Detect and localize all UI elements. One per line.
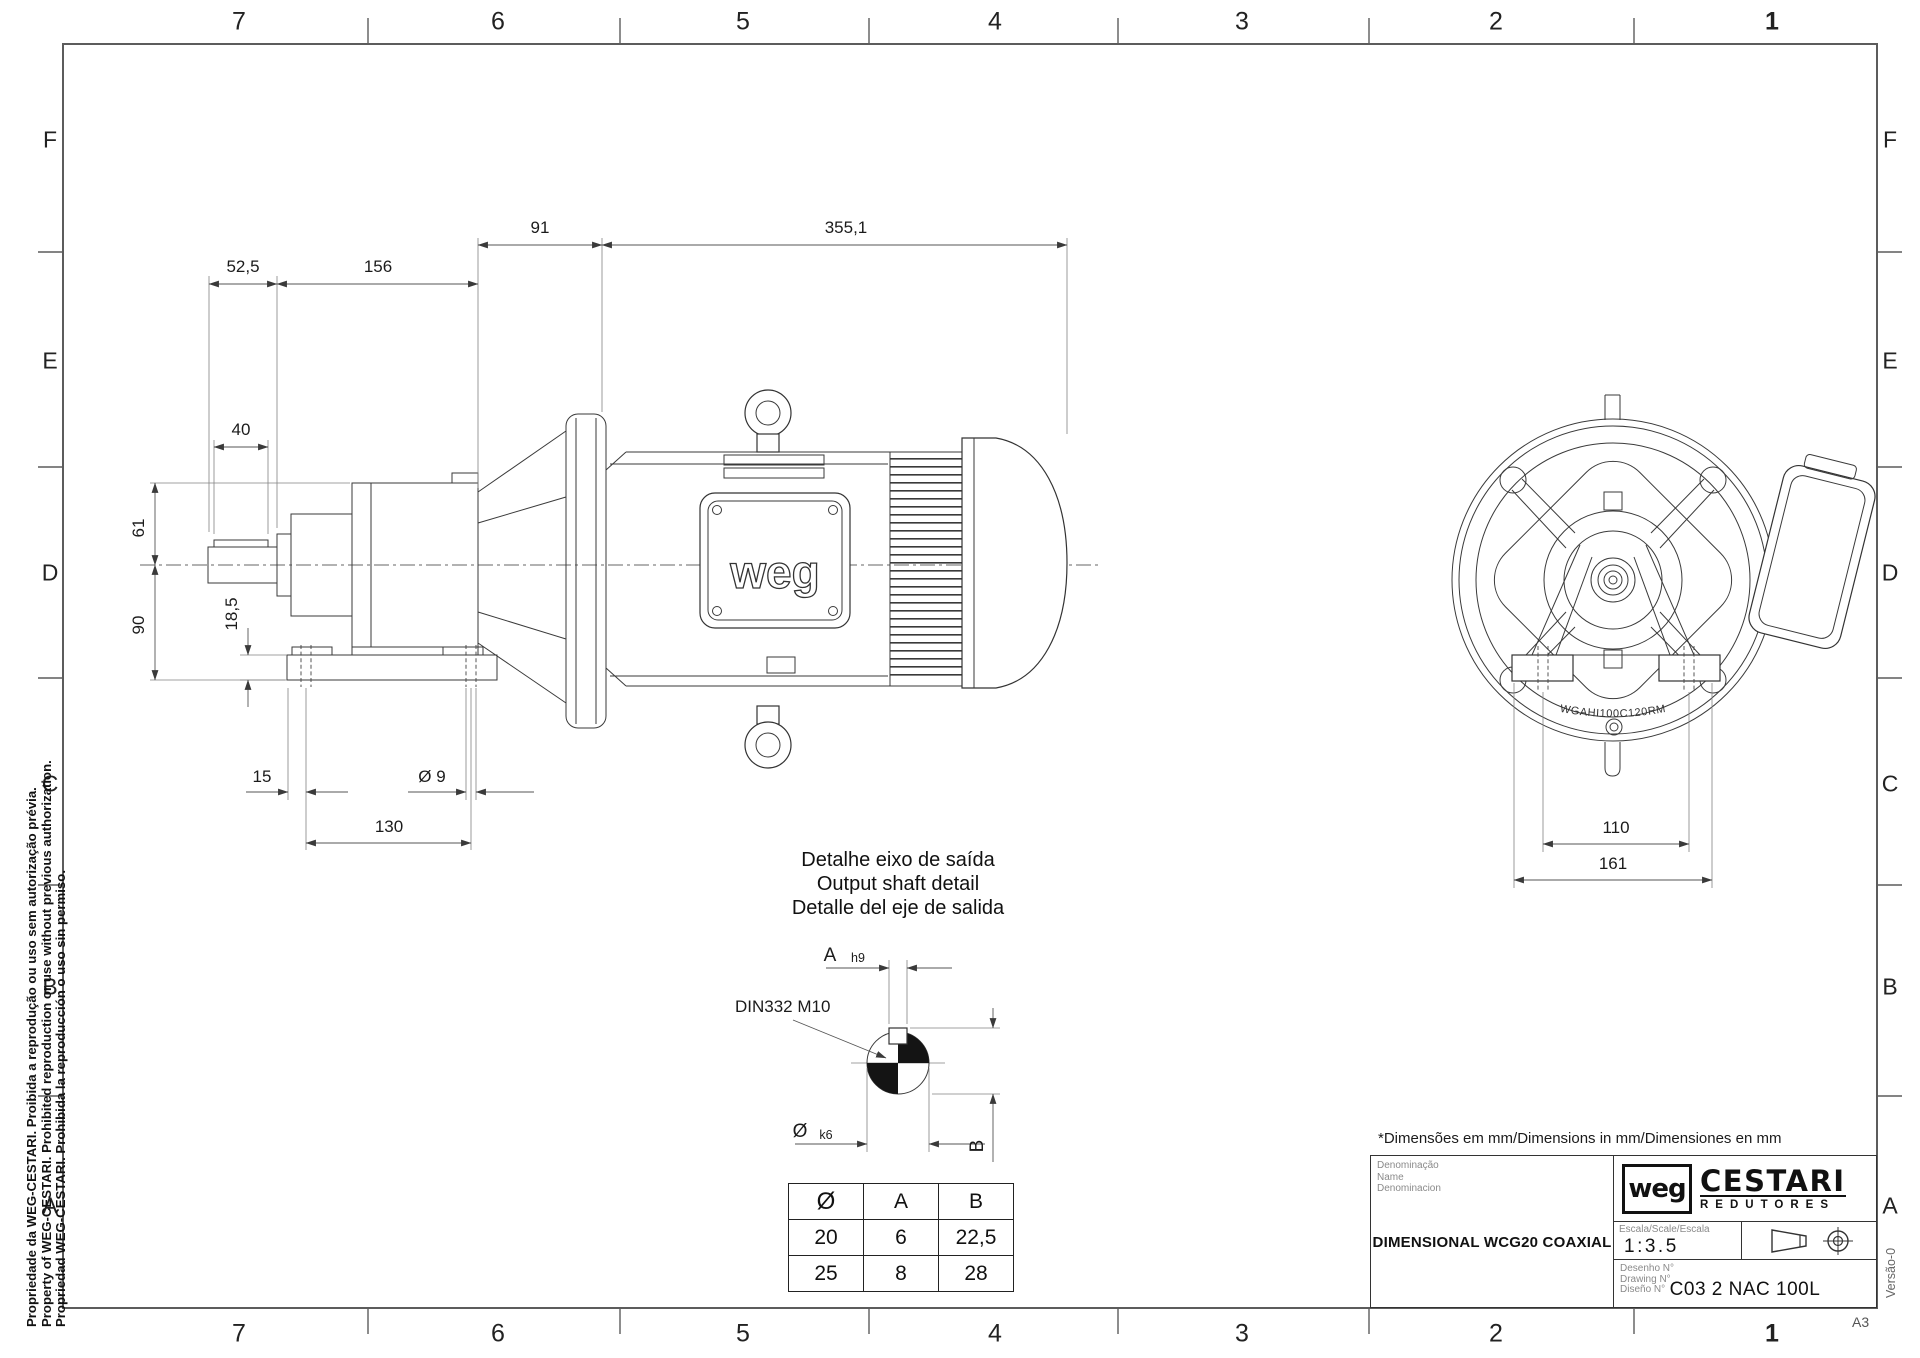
name-label-es: Denominacion <box>1377 1183 1613 1195</box>
svg-text:18,5: 18,5 <box>222 597 241 630</box>
zone-col: 7 <box>232 8 246 37</box>
svg-text:Detalhe eixo de saída: Detalhe eixo de saída <box>801 849 995 871</box>
svg-text:355,1: 355,1 <box>825 218 868 237</box>
zone-row: F <box>43 127 57 154</box>
drawing-number-cell: Desenho N° Drawing N° Diseño N° C03 2 NA… <box>1614 1260 1876 1307</box>
brand-name: CESTARI <box>1700 1167 1846 1197</box>
zone-row: E <box>42 348 57 375</box>
zone-col: 6 <box>491 8 505 37</box>
scale-value: 1:3.5 <box>1614 1236 1741 1258</box>
zone-row: B <box>1882 974 1897 1001</box>
zone-col: 3 <box>1235 8 1249 37</box>
svg-text:130: 130 <box>375 817 403 836</box>
svg-text:91: 91 <box>531 218 550 237</box>
name-label-en: Name <box>1377 1172 1613 1184</box>
zone-row: F <box>1883 127 1897 154</box>
zone-col: 1 <box>1765 1320 1779 1349</box>
svg-text:15: 15 <box>253 767 272 786</box>
zone-col: 5 <box>736 8 750 37</box>
eyebolt-top <box>745 390 791 452</box>
brand-division: REDUTORES <box>1700 1199 1846 1211</box>
eyebolt-bottom <box>745 706 791 768</box>
table-cell: 22,5 <box>939 1220 1014 1256</box>
svg-text:DIN332 M10: DIN332 M10 <box>735 997 830 1016</box>
weg-logo: weg <box>1622 1164 1692 1214</box>
svg-text:110: 110 <box>1602 818 1629 837</box>
svg-text:k6: k6 <box>819 1128 832 1142</box>
drawing-no-label-pt: Desenho N° <box>1620 1264 1876 1275</box>
shaft-dimension-table: Ø A B 20 6 22,5 25 8 28 <box>788 1183 1014 1292</box>
zone-col: 5 <box>736 1320 750 1349</box>
units-note: *Dimensões em mm/Dimensions in mm/Dimens… <box>1378 1130 1781 1147</box>
svg-text:B: B <box>967 1140 988 1153</box>
zone-col: 4 <box>988 8 1002 37</box>
svg-text:Detalle del eje de salida: Detalle del eje de salida <box>792 897 1005 919</box>
zone-col: 2 <box>1489 1320 1503 1349</box>
drawing-sheet: weg <box>0 0 1920 1358</box>
svg-text:61: 61 <box>129 519 148 538</box>
svg-text:40: 40 <box>232 420 251 439</box>
zone-row: A <box>1882 1193 1897 1220</box>
scale-cell: Escala/Scale/Escala 1:3.5 <box>1614 1222 1742 1259</box>
copyright-notice: Propriedade da WEG-CESTARI. Proibida a r… <box>25 667 67 1327</box>
zone-col: 7 <box>232 1320 246 1349</box>
table-cell: 6 <box>864 1220 939 1256</box>
zone-col: 2 <box>1489 8 1503 37</box>
zone-col: 4 <box>988 1320 1002 1349</box>
svg-text:Output shaft detail: Output shaft detail <box>817 873 979 895</box>
drawing-title: DIMENSIONAL WCG20 COAXIAL <box>1371 1234 1613 1251</box>
side-view-dimensions: 52,5 156 91 355,1 40 61 90 18,5 15 <box>129 218 1067 850</box>
svg-text:156: 156 <box>364 257 392 276</box>
zone-col: 3 <box>1235 1320 1249 1349</box>
name-label-pt: Denominação <box>1377 1160 1613 1172</box>
table-header: A <box>864 1184 939 1220</box>
svg-text:A: A <box>824 945 837 966</box>
first-angle-projection-icon <box>1754 1224 1864 1258</box>
svg-text:161: 161 <box>1599 854 1627 873</box>
title-block-name-cell: Denominação Name Denominacion DIMENSIONA… <box>1371 1156 1614 1307</box>
zone-col: 6 <box>491 1320 505 1349</box>
zone-row: E <box>1882 348 1897 375</box>
zone-col: 1 <box>1765 8 1779 37</box>
zone-row: C <box>1882 771 1899 798</box>
version-label: Versão-0 <box>1884 1228 1902 1318</box>
table-row: 25 8 28 <box>789 1256 1014 1292</box>
table-cell: 28 <box>939 1256 1014 1292</box>
drawing-number: C03 2 NAC 100L <box>1614 1279 1876 1301</box>
front-view: WGAHI100C120RM 110 161 <box>1452 395 1882 888</box>
projection-symbol-cell <box>1742 1222 1876 1259</box>
copyright-line-en: Property of WEG-CESTARI. Prohibited repr… <box>40 667 55 1327</box>
side-view: weg <box>129 218 1098 850</box>
table-row: 20 6 22,5 <box>789 1220 1014 1256</box>
svg-text:h9: h9 <box>851 951 865 965</box>
copyright-line-pt: Propriedade da WEG-CESTARI. Proibida a r… <box>25 667 40 1327</box>
zone-row: D <box>1882 560 1899 587</box>
sheet-format: A3 <box>1852 1314 1869 1330</box>
svg-text:Ø 9: Ø 9 <box>418 767 445 786</box>
svg-text:Ø: Ø <box>793 1121 808 1142</box>
shaft-detail: Detalhe eixo de saída Output shaft detai… <box>735 849 1005 1162</box>
terminal-box <box>1746 450 1882 652</box>
weg-logo-nameplate: weg <box>729 546 819 598</box>
svg-text:90: 90 <box>129 616 148 635</box>
table-cell: 20 <box>789 1220 864 1256</box>
table-cell: 25 <box>789 1256 864 1292</box>
svg-text:52,5: 52,5 <box>226 257 259 276</box>
flange-code: WGAHI100C120RM <box>1559 703 1667 720</box>
table-header: Ø <box>789 1184 864 1220</box>
copyright-line-es: Propriedad WEG-CESTARI. Prohibida la rep… <box>54 667 69 1327</box>
table-header: B <box>939 1184 1014 1220</box>
zone-row: D <box>42 560 59 587</box>
brand-row: weg CESTARI REDUTORES <box>1614 1156 1876 1222</box>
table-cell: 8 <box>864 1256 939 1292</box>
scale-label: Escala/Scale/Escala <box>1614 1222 1741 1236</box>
title-block: Denominação Name Denominacion DIMENSIONA… <box>1370 1155 1877 1308</box>
